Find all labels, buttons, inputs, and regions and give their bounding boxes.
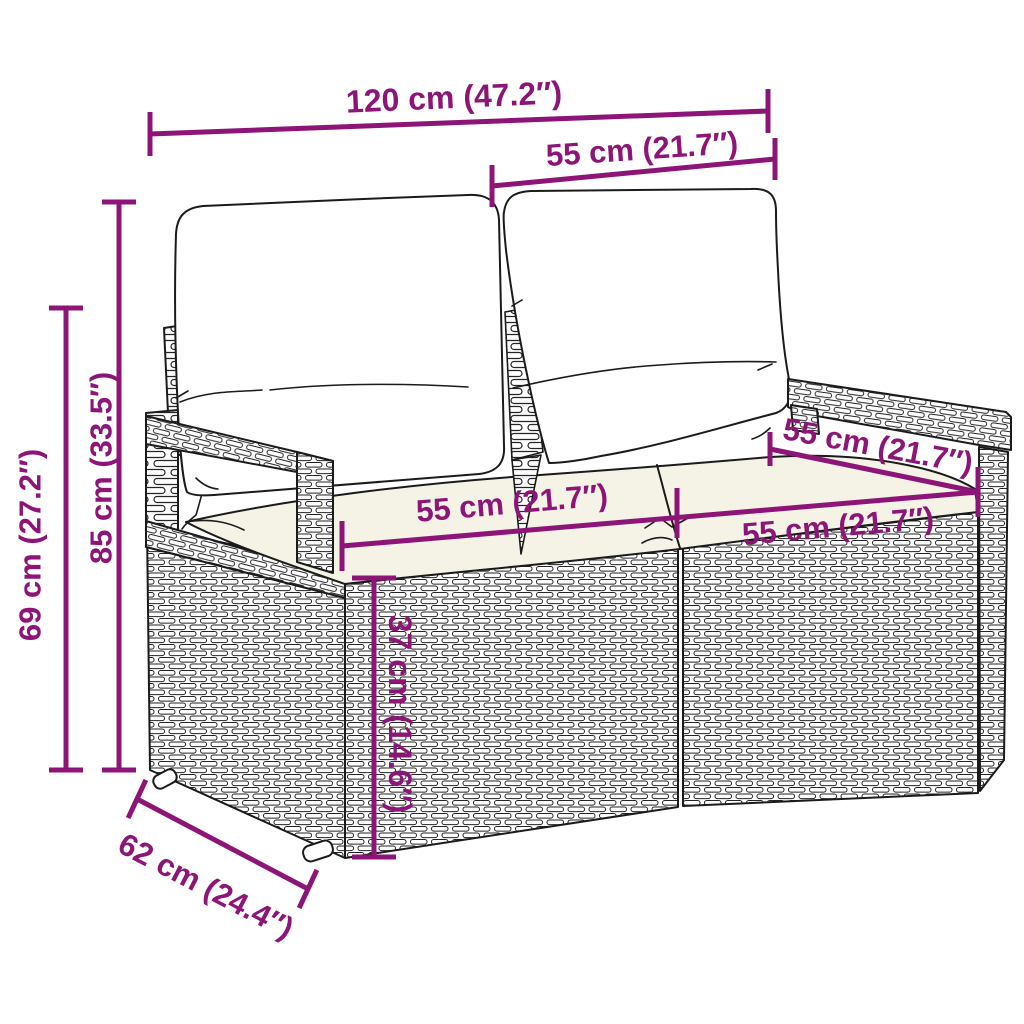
dim-total-height-label: 85 cm (33.5″)	[86, 372, 117, 564]
left-armrest-front-post	[297, 452, 333, 573]
back-cushion-right	[504, 189, 791, 463]
dim-seat-height-label: 37 cm (14.6″)	[384, 615, 416, 814]
dim-total-width-label: 120 cm (47.2″)	[345, 76, 563, 117]
dim-armrest-height-line	[49, 308, 83, 770]
dimension-diagram: 120 cm (47.2″) 55 cm (21.7″) 85 cm (33.5…	[0, 0, 1024, 1024]
dim-armrest-height-label: 69 cm (27.2″)	[15, 449, 46, 641]
base-panel-right	[683, 512, 978, 806]
base-right-side-face	[979, 447, 1008, 791]
